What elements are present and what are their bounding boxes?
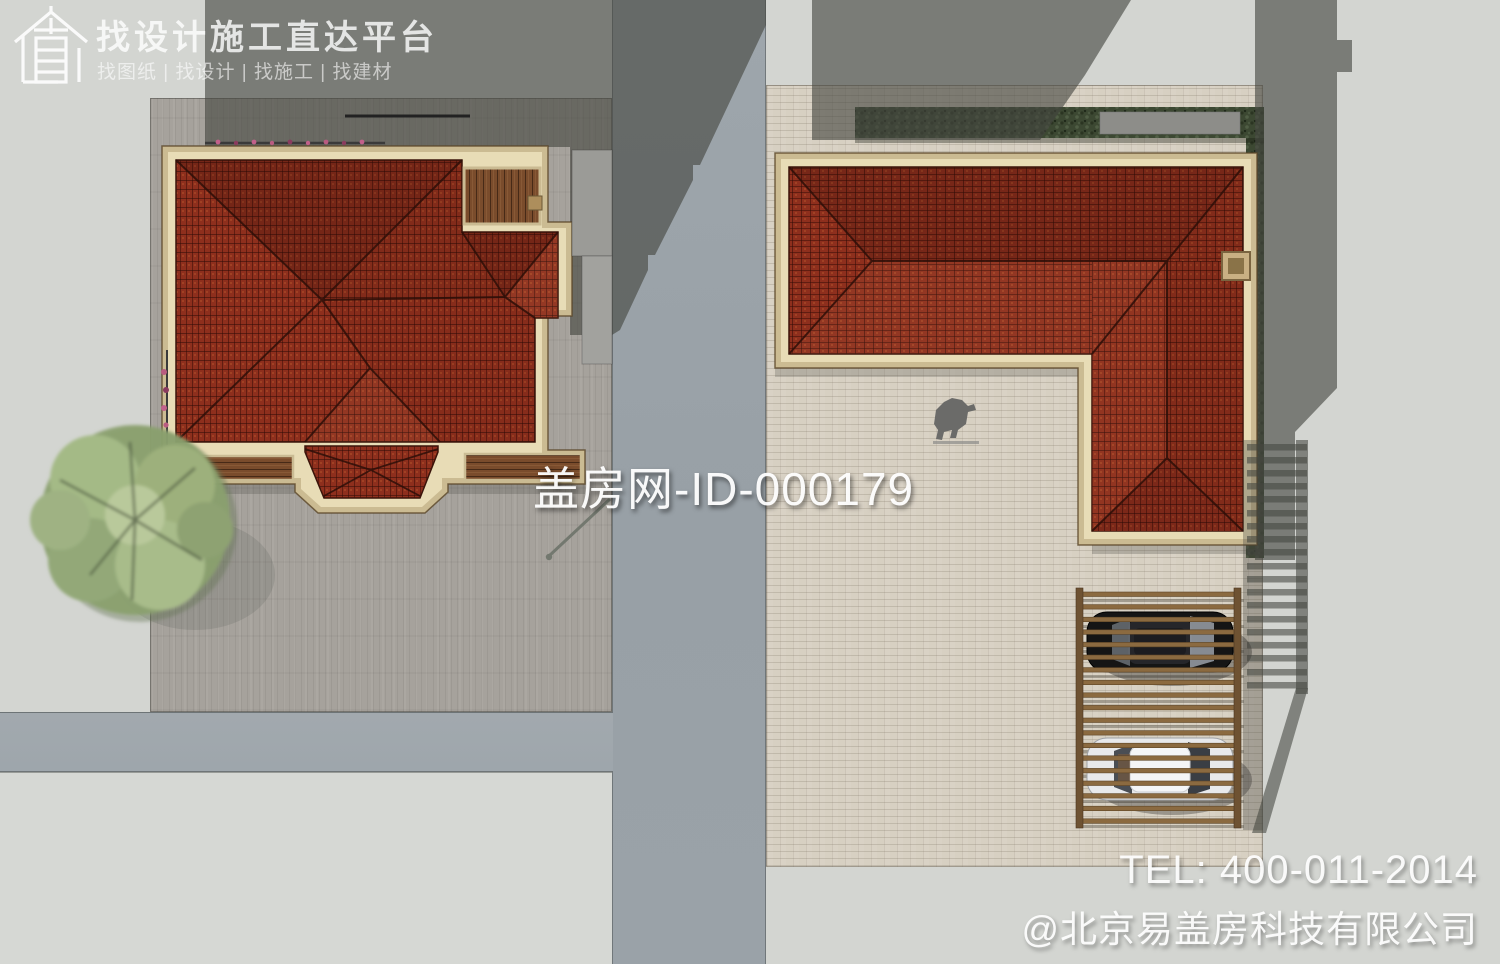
boundary-wall [1100,112,1240,134]
house-logo-icon [10,4,92,88]
carport-pergola [1076,588,1252,828]
chimney-flue [1228,258,1244,274]
dog-shadow [933,398,979,444]
watermark-site-id: 盖房网-ID-000179 [533,453,914,519]
right-house-south-shadow2 [1092,545,1257,554]
east-terrace-upper [572,150,612,256]
pergola-cast-shadow [1243,440,1308,833]
platform-logo: 找设计施工直达平台 找图纸 | 找设计 | 找施工 | 找建材 [0,0,470,100]
site-plan-scene: 找设计施工直达平台 找图纸 | 找设计 | 找施工 | 找建材 盖房网-ID-0… [0,0,1500,964]
bay-window-roof [305,446,438,498]
pergola-rail-right [1234,588,1241,828]
pergola-rail-left [1076,588,1083,828]
logo-subtitle: 找图纸 | 找设计 | 找施工 | 找建材 [97,57,392,84]
company-name: @北京易盖房科技有限公司 [1021,899,1478,953]
phone-number: TEL: 400-011-2014 [1021,848,1478,893]
right-house-south-shadow [775,368,1078,377]
logo-title: 找设计施工直达平台 [96,10,438,59]
contact-info: TEL: 400-011-2014 @北京易盖房科技有限公司 [1021,848,1478,953]
east-terrace-lower [582,256,612,364]
deck-post [528,196,542,210]
